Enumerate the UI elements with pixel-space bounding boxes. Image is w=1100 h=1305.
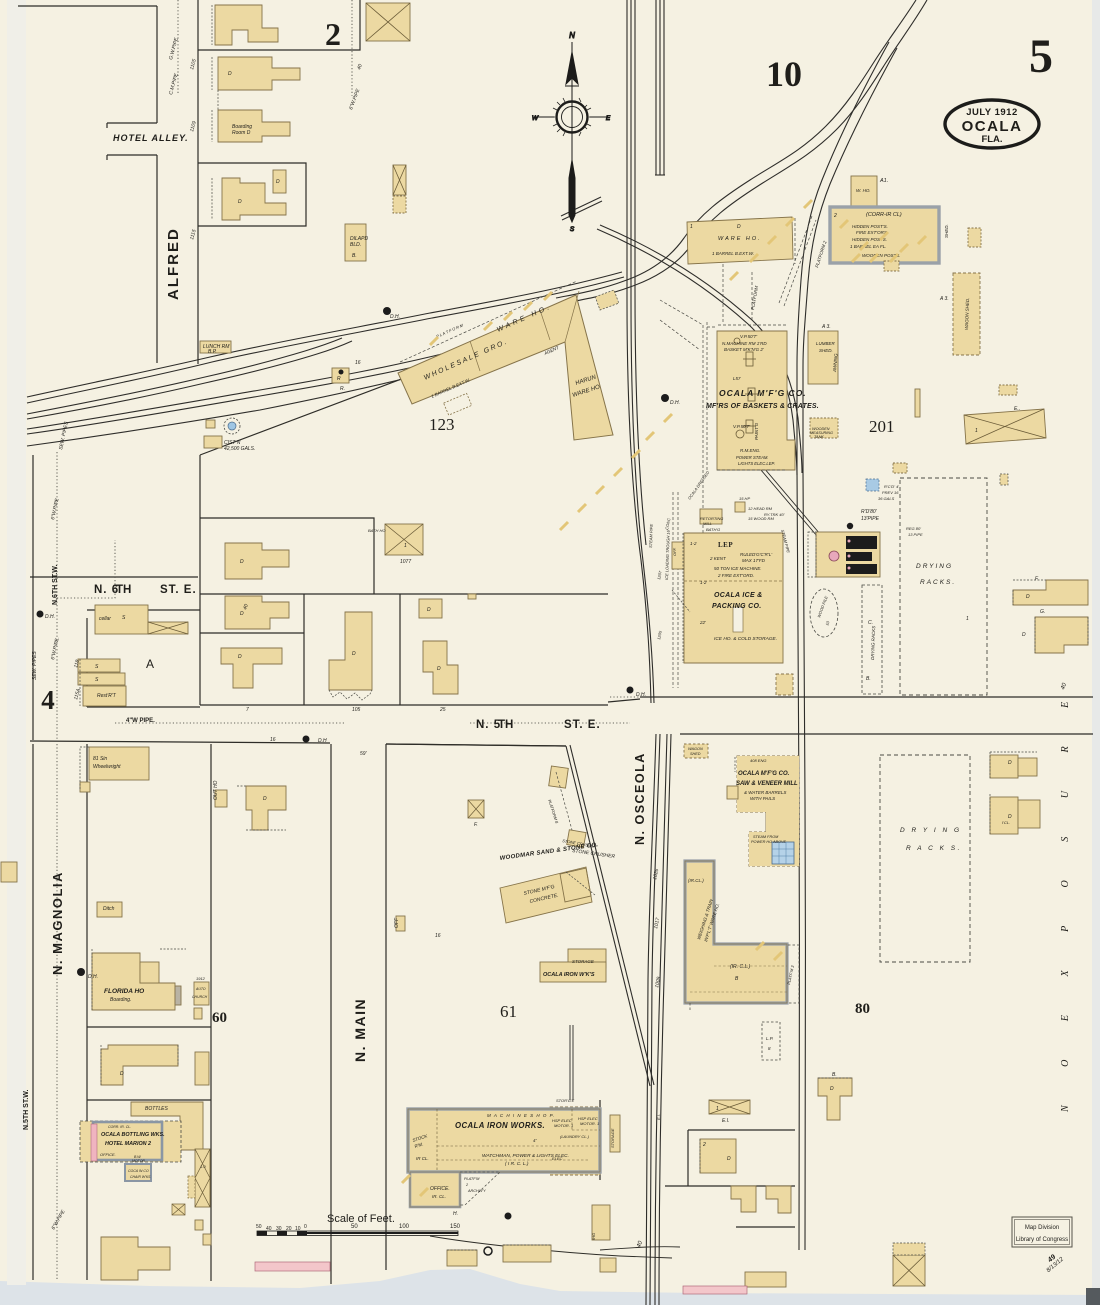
svg-text:OFF.: OFF. <box>672 547 677 556</box>
svg-text:D.H.: D.H. <box>670 400 680 406</box>
svg-text:STORAGE: STORAGE <box>572 959 595 964</box>
svg-text:B.: B. <box>832 1072 837 1078</box>
svg-text:W: W <box>532 115 539 122</box>
svg-text:E: E <box>606 115 611 122</box>
svg-text:1: 1 <box>404 543 407 549</box>
svg-text:408 ENG: 408 ENG <box>750 758 766 763</box>
svg-text:16: 16 <box>270 737 276 743</box>
svg-text:N. OSCEOLA: N. OSCEOLA <box>633 752 647 845</box>
svg-text:H.: H. <box>453 1211 458 1217</box>
svg-text:MOTOR. 1: MOTOR. 1 <box>580 1121 599 1126</box>
svg-text:ST. E.: ST. E. <box>160 584 197 596</box>
svg-text:7: 7 <box>246 707 249 713</box>
svg-text:W. HO.: W. HO. <box>856 188 871 193</box>
svg-text:0: 0 <box>304 1224 307 1230</box>
svg-text:1: 1 <box>966 616 969 622</box>
svg-text:BASKET M'K'N'G 2': BASKET M'K'N'G 2' <box>724 347 764 352</box>
svg-text:(IR. C.L.): (IR. C.L.) <box>730 964 751 970</box>
svg-text:22': 22' <box>699 620 706 625</box>
svg-text:IR CL.: IR CL. <box>416 1156 429 1161</box>
svg-text:WARE HO.: WARE HO. <box>718 236 762 242</box>
svg-text:D: D <box>276 179 280 185</box>
svg-text:MOTOR. 1: MOTOR. 1 <box>554 1123 573 1128</box>
svg-text:F.: F. <box>474 822 478 828</box>
svg-text:2: 2 <box>833 213 837 219</box>
svg-text:N.6TH ST.W.: N.6TH ST.W. <box>52 564 59 605</box>
svg-text:D: D <box>352 651 356 657</box>
svg-text:D: D <box>120 1071 124 1077</box>
svg-text:(CORR-IR CL): (CORR-IR CL) <box>866 212 902 218</box>
svg-text:123: 123 <box>429 415 455 434</box>
svg-text:M A C H I N E S H O P.: M A C H I N E S H O P. <box>487 1113 555 1118</box>
svg-text:D: D <box>263 796 267 802</box>
svg-text:BOTTLES: BOTTLES <box>145 1106 168 1112</box>
svg-text:D R Y I N G: D R Y I N G <box>900 827 962 834</box>
svg-text:81 Sin: 81 Sin <box>93 756 107 762</box>
svg-text:R.M.ENG.: R.M.ENG. <box>740 448 761 453</box>
svg-text:13 PIPE: 13 PIPE <box>908 532 923 537</box>
svg-text:MILL: MILL <box>703 521 712 526</box>
svg-text:OCALA IRON W'K'S: OCALA IRON W'K'S <box>543 972 595 978</box>
svg-text:OCALA IRON WORKS.: OCALA IRON WORKS. <box>455 1121 545 1130</box>
svg-text:F.: F. <box>1035 576 1039 582</box>
svg-text:D: D <box>238 654 242 660</box>
svg-text:V.P.50'T': V.P.50'T' <box>740 334 757 339</box>
svg-text:BATH HO: BATH HO <box>368 528 385 533</box>
svg-text:PACKING CO.: PACKING CO. <box>712 603 761 610</box>
svg-text:MAX 17'FD: MAX 17'FD <box>742 558 766 563</box>
svg-text:42,500 GALS.: 42,500 GALS. <box>224 446 255 452</box>
svg-text:N O E X P O S U R E: N O E X P O S U R E <box>1060 684 1071 1113</box>
svg-text:13'PIPE: 13'PIPE <box>861 516 880 522</box>
svg-text:JULY 1912: JULY 1912 <box>966 107 1018 118</box>
svg-text:N.MACHINE RM 1'RD: N.MACHINE RM 1'RD <box>722 341 767 346</box>
svg-text:I'CL.: I'CL. <box>1002 820 1010 825</box>
svg-text:L.P.: L.P. <box>766 1036 773 1041</box>
svg-text:D: D <box>240 559 244 565</box>
svg-text:OFF: OFF <box>394 917 400 928</box>
svg-text:5: 5 <box>1029 30 1053 83</box>
svg-text:WITH PAILS: WITH PAILS <box>750 796 775 801</box>
svg-text:V.P.50'T': V.P.50'T' <box>733 424 750 429</box>
svg-text:15 HP: 15 HP <box>739 496 750 501</box>
svg-text:105: 105 <box>352 707 361 713</box>
svg-text:15 WOOD RM: 15 WOOD RM <box>748 516 774 521</box>
svg-text:1: 1 <box>975 428 978 434</box>
svg-text:R: R <box>337 376 341 382</box>
svg-text:Scale of Feet.: Scale of Feet. <box>327 1213 395 1225</box>
svg-text:1-2: 1-2 <box>690 541 697 546</box>
svg-text:50 TON ICE MACHINE.: 50 TON ICE MACHINE. <box>714 566 762 571</box>
svg-text:R.: R. <box>340 386 345 392</box>
svg-text:S: S <box>570 226 575 233</box>
svg-text:1 BARREL EA FL.: 1 BARREL EA FL. <box>850 244 887 249</box>
svg-text:N: N <box>569 31 575 40</box>
svg-text:RULED'G'C'R'L': RULED'G'C'R'L' <box>740 552 772 557</box>
svg-text:D: D <box>240 611 244 617</box>
svg-text:SHED: SHED <box>690 752 701 756</box>
svg-text:IR. CL.: IR. CL. <box>432 1194 446 1199</box>
svg-text:PREV 16: PREV 16 <box>882 490 899 495</box>
svg-text:R A C K S.: R A C K S. <box>906 845 962 852</box>
svg-text:cellar: cellar <box>99 616 111 622</box>
svg-text:D.H.: D.H. <box>88 974 98 980</box>
svg-text:POWER STEAM.: POWER STEAM. <box>736 455 769 460</box>
svg-text:D.H: D.H <box>318 738 327 744</box>
svg-text:D: D <box>1008 760 1012 766</box>
svg-text:CHURCH: CHURCH <box>192 995 208 999</box>
svg-text:ALFRED: ALFRED <box>165 227 182 300</box>
svg-text:R'D'80': R'D'80' <box>861 509 878 515</box>
svg-text:HOTEL MARION 2: HOTEL MARION 2 <box>105 1141 151 1147</box>
svg-text:BATH'G: BATH'G <box>706 527 720 532</box>
svg-text:COCA IN CO: COCA IN CO <box>128 1169 149 1173</box>
svg-text:DRYING: DRYING <box>916 563 953 570</box>
svg-text:LEP: LEP <box>718 541 733 549</box>
svg-text:36 GALS: 36 GALS <box>878 496 895 501</box>
svg-text:E.I.: E.I. <box>656 1114 661 1120</box>
svg-text:N.5TH ST.W.: N.5TH ST.W. <box>23 1089 30 1130</box>
svg-text:FIRE EXT'ORS.: FIRE EXT'ORS. <box>856 230 888 235</box>
svg-text:Wheelwright: Wheelwright <box>93 764 121 770</box>
svg-text:10: 10 <box>766 54 802 94</box>
svg-text:L57: L57 <box>733 376 741 381</box>
svg-text:D: D <box>437 666 441 672</box>
svg-text:A1.: A1. <box>879 178 888 184</box>
svg-text:OCALA M'F'G CO.: OCALA M'F'G CO. <box>738 771 790 777</box>
svg-text:POWER HO ABOVE: POWER HO ABOVE <box>751 840 787 844</box>
svg-text:4: 4 <box>41 685 55 715</box>
svg-text:OFFICE.: OFFICE. <box>430 1186 450 1192</box>
svg-text:FLA.: FLA. <box>981 134 1002 145</box>
svg-text:N. MAIN: N. MAIN <box>352 998 368 1062</box>
svg-text:IHG: IHG <box>591 1233 596 1240</box>
svg-text:E..: E.. <box>1014 406 1020 412</box>
svg-text:D: D <box>1026 594 1030 600</box>
svg-text:OCALA M'F'G CO.: OCALA M'F'G CO. <box>719 388 807 398</box>
svg-text:80: 80 <box>855 1001 870 1017</box>
svg-text:D: D <box>727 1156 731 1162</box>
svg-text:REG 80': REG 80' <box>906 526 921 531</box>
svg-text:1.0: 1.0 <box>200 1164 206 1169</box>
svg-text:D: D <box>427 607 431 613</box>
svg-text:(IR.CL.): (IR.CL.) <box>688 878 704 883</box>
svg-text:D.H.: D.H. <box>636 692 646 698</box>
svg-text:STORAGE: STORAGE <box>610 1128 615 1148</box>
svg-text:OCALA BOTTLING WKS.: OCALA BOTTLING WKS. <box>101 1132 165 1138</box>
svg-text:HIDDEN POST'S.: HIDDEN POST'S. <box>852 224 888 229</box>
svg-text:TH: TH <box>116 584 131 596</box>
svg-text:ARCHW'Y: ARCHW'Y <box>467 1189 486 1193</box>
svg-text:1 BARREL B.EXT.W.: 1 BARREL B.EXT.W. <box>712 251 754 256</box>
svg-text:RACKS.: RACKS. <box>920 579 956 586</box>
svg-text:SHED.: SHED. <box>819 348 833 353</box>
svg-text:WATCHMAN, POWER & LIGHTS ELEC.: WATCHMAN, POWER & LIGHTS ELEC. <box>482 1153 569 1159</box>
svg-text:C.: C. <box>868 620 873 626</box>
svg-text:59': 59' <box>360 751 368 757</box>
svg-text:2 KENT: 2 KENT <box>709 556 727 561</box>
svg-text:R'C'D' 4': R'C'D' 4' <box>884 484 899 489</box>
svg-text:B.: B. <box>352 253 357 259</box>
svg-text:D: D <box>737 224 741 230</box>
svg-text:OCALA: OCALA <box>962 118 1023 135</box>
svg-text:D.H.: D.H. <box>390 314 400 320</box>
svg-text:STOR'G'E: STOR'G'E <box>556 1098 575 1103</box>
svg-text:Ditch: Ditch <box>103 906 115 912</box>
svg-text:OCALA ICE &: OCALA ICE & <box>714 592 763 599</box>
svg-text:CORR. IR. CL.: CORR. IR. CL. <box>108 1125 131 1129</box>
svg-text:100: 100 <box>399 1224 410 1230</box>
svg-text:2 FIRE EXT'ORD.: 2 FIRE EXT'ORD. <box>717 573 754 578</box>
svg-text:2: 2 <box>702 1142 706 1148</box>
svg-text:D: D <box>238 199 242 205</box>
svg-text:FLORIDA HO: FLORIDA HO <box>104 988 144 995</box>
svg-text:CHAIR W'KS: CHAIR W'KS <box>130 1175 151 1179</box>
svg-text:Boarding.: Boarding. <box>110 997 131 1003</box>
svg-text:PAINT'G: PAINT'G <box>754 422 759 440</box>
svg-text:25: 25 <box>439 707 446 713</box>
svg-text:G.: G. <box>1040 609 1045 615</box>
svg-text:OFFICE.: OFFICE. <box>100 1152 116 1157</box>
svg-text:1-2: 1-2 <box>700 580 707 585</box>
svg-text:1: 1 <box>716 1106 719 1112</box>
svg-text:PLATF'M: PLATF'M <box>464 1177 480 1181</box>
svg-text:60: 60 <box>212 1010 227 1026</box>
svg-text:N. MAGNOLIA: N. MAGNOLIA <box>50 871 65 975</box>
svg-text:Rest'R'T: Rest'R'T <box>97 693 117 699</box>
svg-text:LIGHTS ELEC.LEP.: LIGHTS ELEC.LEP. <box>738 461 775 466</box>
svg-text:1912: 1912 <box>196 976 206 981</box>
svg-text:ST. E.: ST. E. <box>564 719 601 731</box>
svg-text:16: 16 <box>435 933 441 939</box>
svg-text:( I R. C. L.): ( I R. C. L.) <box>505 1161 529 1167</box>
svg-text:D: D <box>1022 632 1026 638</box>
svg-text:TH: TH <box>498 719 513 731</box>
svg-text:& WATER BARRELS: & WATER BARRELS <box>744 790 786 795</box>
svg-text:16: 16 <box>355 360 361 366</box>
svg-text:HOTEL ALLEY.: HOTEL ALLEY. <box>113 133 189 143</box>
svg-text:MF'RS OF BASKETS & CRATES.: MF'RS OF BASKETS & CRATES. <box>706 403 819 410</box>
svg-text:WAGON: WAGON <box>688 747 703 751</box>
svg-text:Room D: Room D <box>232 130 251 136</box>
svg-text:(LAUNDRY CL.): (LAUNDRY CL.) <box>560 1134 590 1139</box>
svg-text:1077: 1077 <box>400 559 411 565</box>
svg-text:MOTOR: MOTOR <box>132 1159 145 1163</box>
svg-text:4"W PIPE.: 4"W PIPE. <box>126 718 155 724</box>
svg-text:D: D <box>830 1086 834 1092</box>
svg-text:61: 61 <box>500 1002 517 1021</box>
svg-text:LUMBER: LUMBER <box>816 341 836 346</box>
svg-text:Map Division: Map Division <box>1025 1225 1059 1231</box>
svg-text:E.I.: E.I. <box>722 1118 730 1124</box>
svg-text:ICE HO. & COLD STORAGE.: ICE HO. & COLD STORAGE. <box>714 636 777 642</box>
svg-text:A 3.: A 3. <box>821 324 831 330</box>
svg-text:201: 201 <box>869 417 895 436</box>
svg-text:Library of Congress: Library of Congress <box>1016 1237 1068 1243</box>
svg-text:150: 150 <box>450 1224 461 1230</box>
svg-text:A 3.: A 3. <box>939 296 949 302</box>
svg-text:A: A <box>146 657 154 671</box>
svg-text:AUTO: AUTO <box>195 987 206 991</box>
svg-text:D: D <box>228 71 232 77</box>
svg-text:1: 1 <box>690 224 693 230</box>
svg-text:STEAM PIPE: STEAM PIPE <box>648 524 654 548</box>
svg-text:SHED.: SHED. <box>944 224 949 238</box>
svg-text:TANK: TANK <box>814 435 824 439</box>
svg-text:OUT HO: OUT HO <box>213 780 219 800</box>
svg-text:12 HEAD RM: 12 HEAD RM <box>748 506 773 511</box>
svg-text:STEAM FROM: STEAM FROM <box>753 835 779 839</box>
svg-text:D.H.: D.H. <box>45 614 55 620</box>
svg-text:SAW & VENEER MILL: SAW & VENEER MILL <box>736 781 798 787</box>
svg-text:50: 50 <box>351 1224 358 1230</box>
svg-text:50: 50 <box>256 1224 262 1230</box>
svg-text:2: 2 <box>325 16 341 52</box>
svg-text:B.P.: B.P. <box>208 349 217 355</box>
svg-text:BLD.: BLD. <box>350 242 361 248</box>
svg-text:SEW. PIPES: SEW. PIPES <box>32 651 38 680</box>
svg-text:B.: B. <box>866 676 871 682</box>
svg-text:4': 4' <box>533 1138 537 1143</box>
